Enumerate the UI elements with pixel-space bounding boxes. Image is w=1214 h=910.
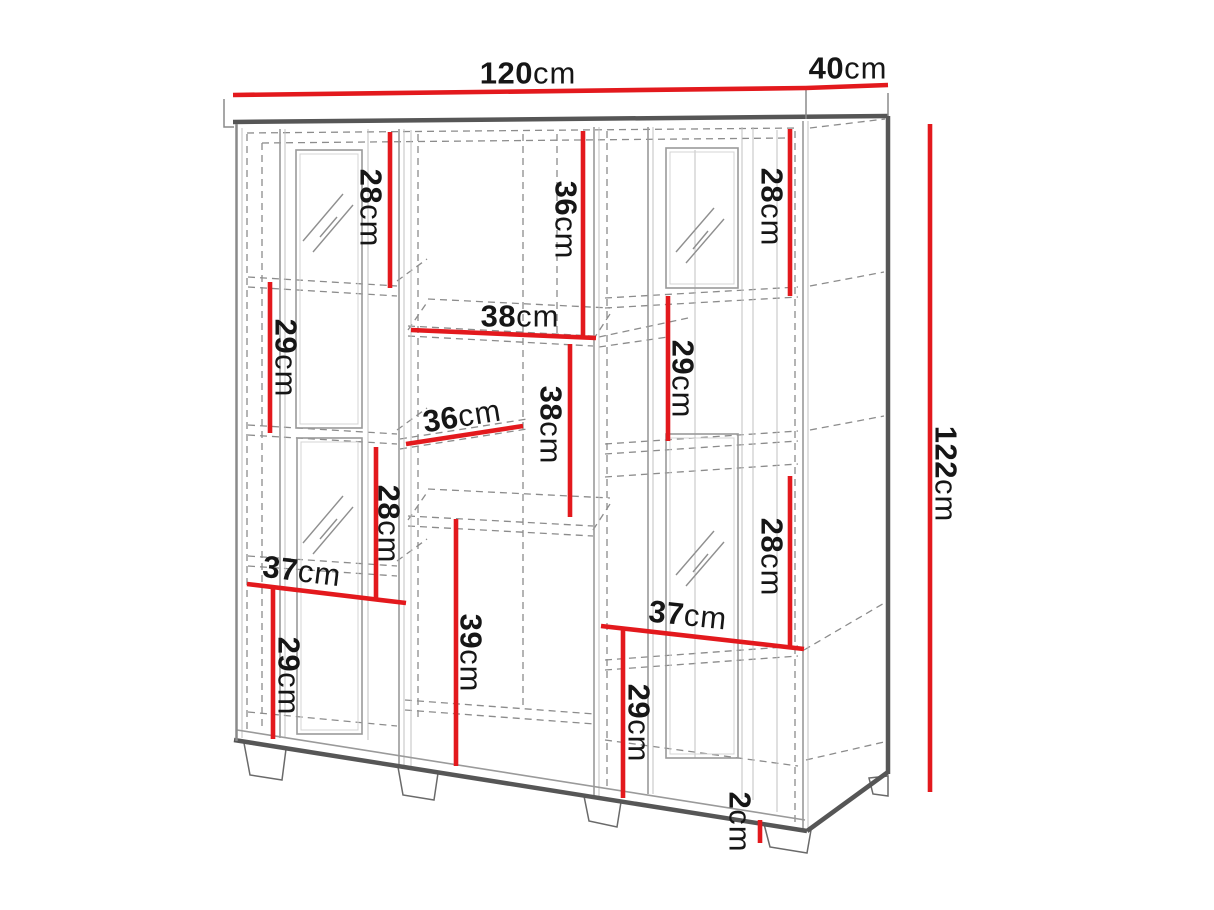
dim-label-right-28-lower: 28cm <box>757 518 788 597</box>
dim-label-center-top-36: 36cm <box>551 181 582 260</box>
glass-pane <box>666 148 738 288</box>
dim-label-total-height: 122cm <box>931 426 962 523</box>
dim-label-left-top-28: 28cm <box>356 169 387 248</box>
glass-pane <box>296 150 362 428</box>
dim-label-right-bottom-29: 29cm <box>624 684 655 763</box>
dim-label-center-39: 39cm <box>456 614 487 693</box>
dim-label-left-29: 29cm <box>271 319 302 398</box>
dim-label-center-38-width: 38cm <box>481 301 560 332</box>
dim-label-left-28-lower: 28cm <box>374 485 405 564</box>
dim-label-right-top-28: 28cm <box>757 168 788 247</box>
dim-label-depth: 40cm <box>809 53 888 84</box>
thin-structure-lines <box>242 121 808 830</box>
frame-lines <box>237 121 805 829</box>
dimension-diagram: 120cm 40cm 122cm 28cm 29cm 36cm 38cm 38c… <box>0 0 1214 910</box>
dim-label-right-37-width: 37cm <box>647 595 729 634</box>
dim-label-right-29: 29cm <box>668 340 699 419</box>
dim-label-center-38-height: 38cm <box>536 386 567 465</box>
dim-label-total-width: 120cm <box>480 58 577 89</box>
dim-label-left-bottom-29: 29cm <box>274 637 305 716</box>
cabinet-feet <box>244 743 888 853</box>
diagram-canvas <box>0 0 1214 910</box>
dim-label-left-37-width: 37cm <box>261 551 343 591</box>
dim-label-foot-2: 2cm <box>725 791 756 852</box>
glass-hatch-icon <box>303 194 724 586</box>
